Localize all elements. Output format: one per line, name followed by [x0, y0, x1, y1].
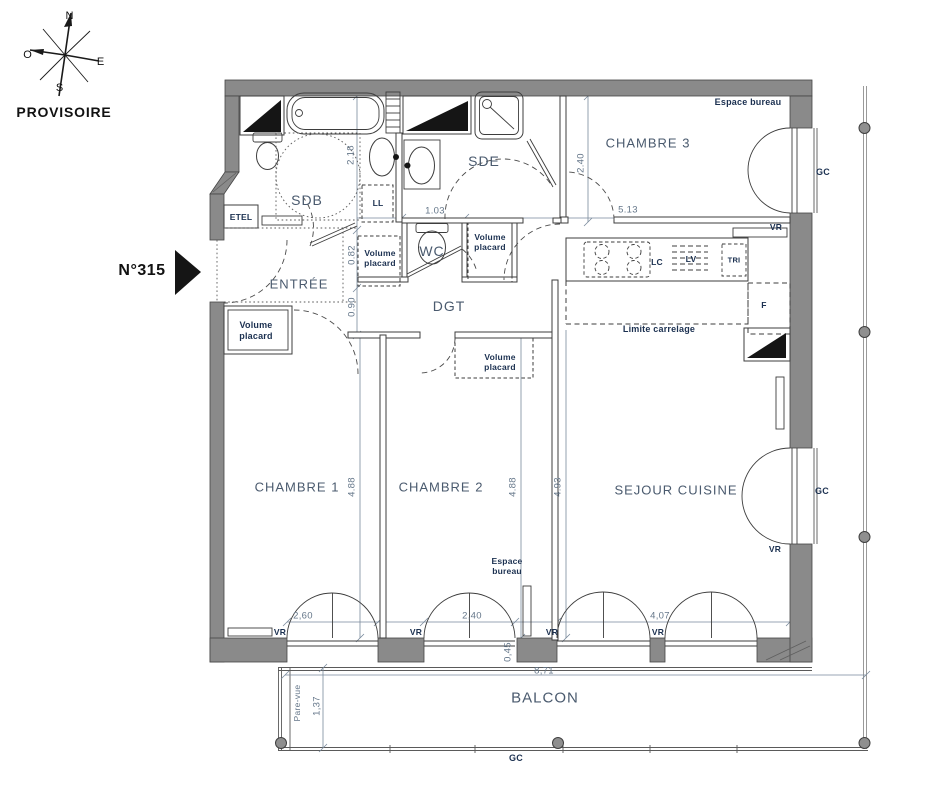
burner: [627, 261, 641, 275]
roller-shutter-box: [228, 628, 272, 636]
shutter-wedge-sejour: [747, 333, 786, 358]
room-label-sde: SDE: [468, 153, 500, 169]
tile-limit-label: Limite carrelage: [623, 324, 695, 334]
dishwasher-label: LV: [686, 254, 697, 264]
privacy-screen-label: Pare-vue: [292, 685, 302, 722]
dim-chambre2-height: 4.88: [508, 477, 519, 497]
closet-label-wc-east: Volume placard: [464, 232, 516, 252]
burner: [627, 245, 641, 259]
interior-walls: [348, 96, 790, 640]
fridge-box: [748, 283, 790, 334]
roller-shutter-label: VR: [770, 222, 782, 232]
burner: [595, 245, 609, 259]
shutter-wedge-sde: [406, 101, 468, 131]
room-label-sejour: SEJOUR CUISINE: [614, 483, 737, 498]
roller-shutter-label: VR: [410, 627, 422, 637]
dim-sdb-height: 2.18: [346, 145, 357, 165]
waste-sorting-label: TRI: [728, 256, 741, 265]
room-label-entree: ENTRÉE: [270, 277, 329, 292]
compass-north: N: [66, 10, 75, 22]
radiator: [776, 377, 784, 429]
dim-sejour-window: 4,07: [650, 611, 670, 622]
entrance-arrow: [175, 250, 201, 295]
dim-chambre3-height: 2.40: [576, 153, 587, 173]
desk-area-label-chambre2: Espace bureau: [484, 556, 530, 576]
guardrail-label: GC: [816, 167, 830, 177]
floor-plan-drawing: [0, 0, 946, 800]
roller-shutter-label: VR: [652, 627, 664, 637]
guardrail-label: GC: [815, 486, 829, 496]
compass-rose: [30, 13, 99, 96]
room-label-wc: WC: [419, 243, 444, 259]
closet-label-entree: Volume placard: [230, 320, 282, 342]
unit-number: N°315: [118, 262, 165, 280]
shutter-wedge-sdb: [243, 100, 281, 132]
dim-chambre1-height: 4.88: [347, 477, 358, 497]
dim-window-pier: 0,45: [503, 642, 514, 662]
compass-west: O: [23, 49, 33, 61]
room-label-chambre1: CHAMBRE 1: [255, 480, 340, 495]
roller-shutter-label: VR: [769, 544, 781, 554]
room-label-balcon: BALCON: [511, 690, 579, 707]
electrical-panel-label: ETEL: [230, 212, 253, 222]
room-label-sdb: SDB: [291, 192, 323, 208]
room-label-chambre3: CHAMBRE 3: [606, 136, 691, 151]
closet-label-chambre2: Volume placard: [474, 352, 526, 372]
fridge-label: F: [761, 300, 766, 310]
dim-chambre1-window: 2,60: [293, 611, 313, 622]
roller-shutter-label: VR: [274, 627, 286, 637]
dim-sejour-height: 4.93: [553, 477, 564, 497]
floor-plan-page: PROVISOIRE N°315 N E S O SDB SDE WC ENTR…: [0, 0, 946, 800]
compass-east: E: [97, 56, 105, 68]
provisional-stamp: PROVISOIRE: [16, 104, 111, 120]
room-label-dgt: DGT: [433, 298, 466, 314]
guardrail-label: GC: [509, 753, 523, 763]
dim-placard: 0.82: [347, 245, 358, 265]
desk-area-label-chambre3: Espace bureau: [715, 97, 782, 107]
dim-chambre2-window: 2,40: [462, 611, 482, 622]
kitchen-lc-label: LC: [651, 257, 663, 267]
dim-wc-width: 1.03: [425, 206, 445, 217]
dim-degagement: 0.90: [347, 297, 358, 317]
washer-label: LL: [373, 198, 384, 208]
closet-label-wc-west: Volume placard: [354, 248, 406, 268]
roller-shutter-label: VR: [546, 627, 558, 637]
facade-line: [864, 86, 867, 749]
dim-balcon-depth: 1,37: [312, 696, 323, 716]
balcony-outline: [278, 667, 868, 753]
compass-south: S: [56, 82, 64, 94]
desk: [523, 586, 531, 636]
burner: [595, 261, 609, 275]
room-label-chambre2: CHAMBRE 2: [399, 480, 484, 495]
dim-balcon-width: 8,71: [534, 666, 554, 677]
dim-chambre3-width: 5.13: [618, 205, 638, 216]
